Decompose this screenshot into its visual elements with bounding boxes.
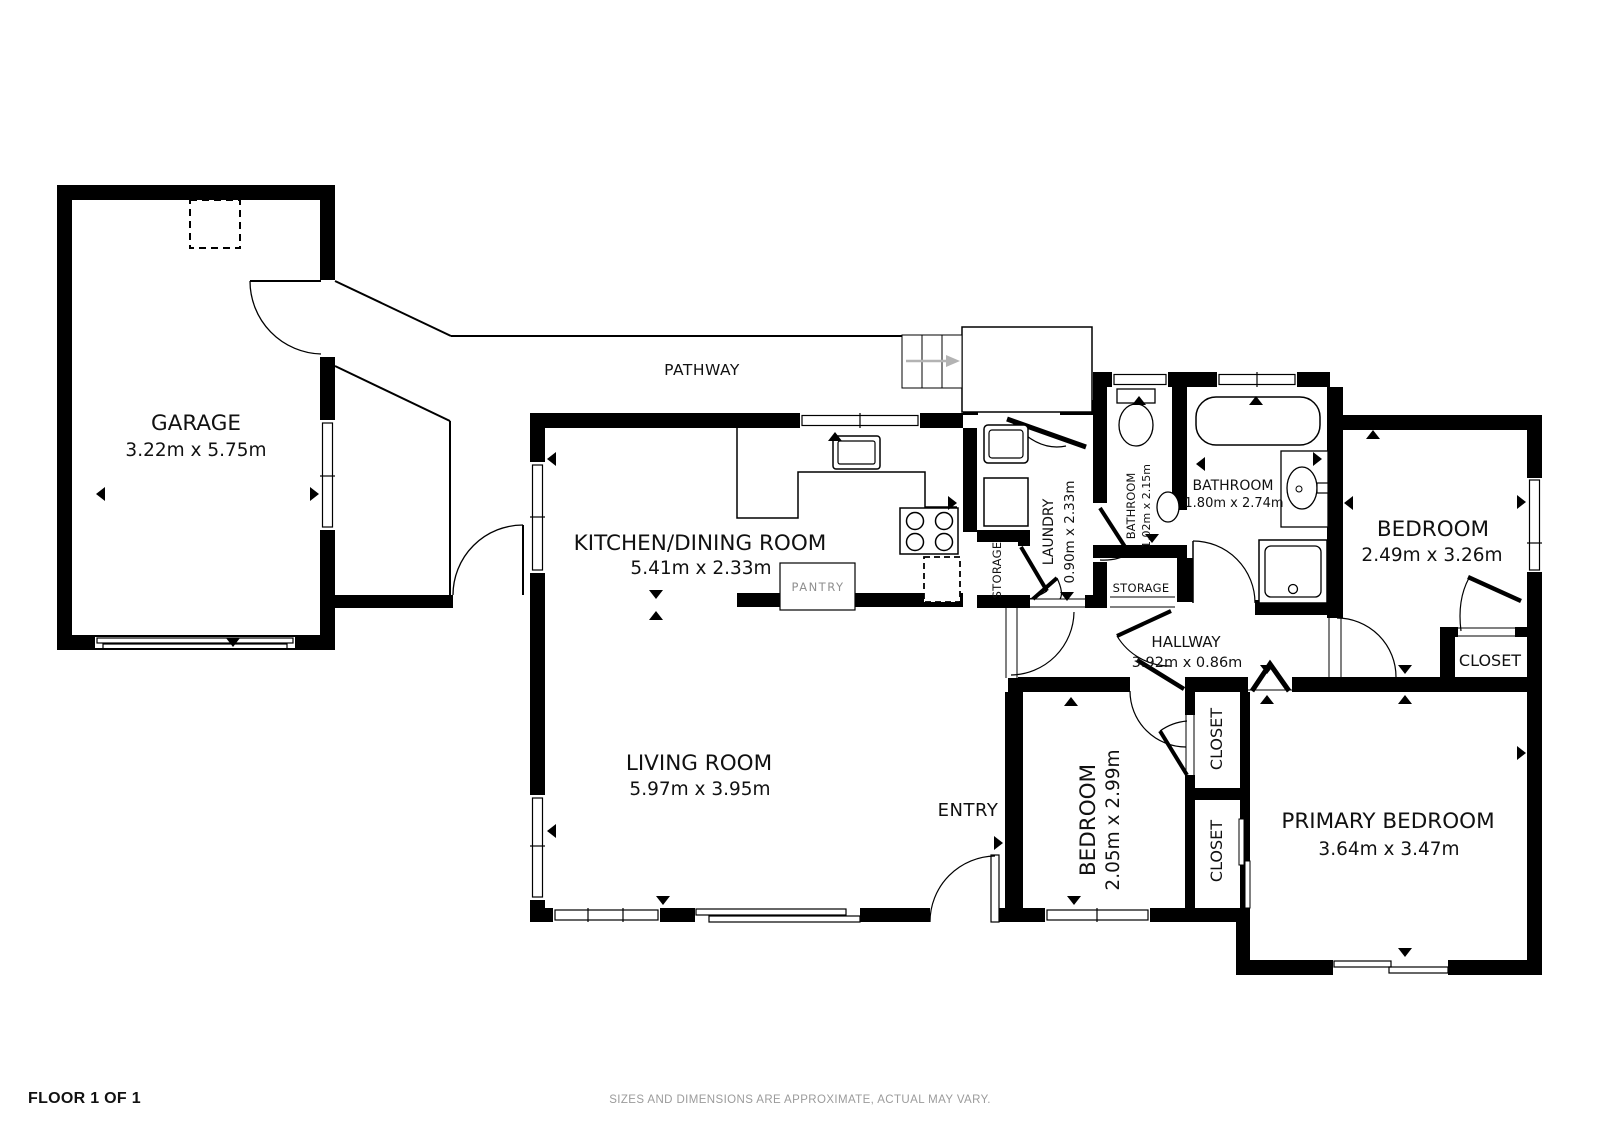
floor-label: FLOOR 1 OF 1 bbox=[28, 1090, 141, 1107]
laundry-south-threshold bbox=[1030, 598, 1085, 608]
closet-upper-label: CLOSET bbox=[1207, 708, 1226, 770]
dryer bbox=[984, 478, 1028, 526]
bedroom-middle-dims: 2.05m x 2.99m bbox=[1103, 749, 1124, 890]
sliding-window bbox=[1333, 960, 1448, 975]
front-entry-door bbox=[930, 855, 999, 922]
garage-dims: 3.22m x 5.75m bbox=[125, 440, 266, 461]
kitchen-dims: 5.41m x 2.33m bbox=[630, 558, 771, 579]
marker-left-icon bbox=[96, 487, 105, 501]
footer: FLOOR 1 OF 1 SIZES AND DIMENSIONS ARE AP… bbox=[28, 1090, 991, 1107]
pantry-label: PANTRY bbox=[792, 580, 845, 594]
shower bbox=[1259, 540, 1327, 603]
hallway-label: HALLWAY bbox=[1151, 633, 1221, 651]
closet-right-door bbox=[1460, 577, 1521, 631]
window bbox=[320, 420, 335, 530]
garage-label: GARAGE bbox=[151, 411, 241, 436]
pathway-gate bbox=[453, 525, 523, 595]
bedroom-middle-label: BEDROOM bbox=[1076, 764, 1101, 876]
window bbox=[530, 795, 545, 900]
marker-left-icon bbox=[547, 452, 556, 466]
marker-up-icon bbox=[1064, 697, 1078, 706]
living-dims: 5.97m x 3.95m bbox=[629, 779, 770, 800]
storage-kitchen-label: STORAGE bbox=[990, 542, 1004, 599]
marker-down-icon bbox=[1067, 896, 1081, 905]
bathroom-small-dims: 1.02m x 2.15m bbox=[1140, 464, 1153, 548]
floor-plan-page: GARAGE 3.22m x 5.75m PATHWAY KITCHEN/DIN… bbox=[0, 0, 1600, 1131]
vanity-sink bbox=[1281, 451, 1328, 527]
garage-door bbox=[95, 637, 295, 649]
entry-label: ENTRY bbox=[938, 800, 999, 821]
main-bath-door bbox=[1193, 541, 1255, 603]
marker-up-icon bbox=[1398, 695, 1412, 704]
disclaimer-text: SIZES AND DIMENSIONS ARE APPROXIMATE, AC… bbox=[609, 1094, 991, 1106]
bedroom-right-door bbox=[1337, 618, 1396, 677]
primary-bedroom-label: PRIMARY BEDROOM bbox=[1281, 809, 1494, 834]
window bbox=[1217, 372, 1297, 387]
garage-utility-dashed-box bbox=[190, 200, 240, 248]
closet-right-threshold bbox=[1458, 627, 1515, 637]
marker-left-icon bbox=[1344, 496, 1353, 510]
kitchen-label: KITCHEN/DINING ROOM bbox=[574, 531, 827, 556]
bedroom-middle-door bbox=[1130, 660, 1186, 747]
primary-bedroom-dims: 3.64m x 3.47m bbox=[1318, 839, 1459, 860]
marker-right-icon bbox=[1517, 495, 1526, 509]
pathway-label: PATHWAY bbox=[664, 361, 740, 379]
marker-left-icon bbox=[547, 824, 556, 838]
toilet bbox=[1117, 389, 1155, 446]
marker-down-icon bbox=[1398, 948, 1412, 957]
laundry-hall-door bbox=[1033, 578, 1061, 599]
window bbox=[1527, 478, 1542, 572]
window bbox=[1045, 908, 1150, 922]
living-label: LIVING ROOM bbox=[626, 751, 772, 776]
floor-plan-canvas: GARAGE 3.22m x 5.75m PATHWAY KITCHEN/DIN… bbox=[0, 0, 1600, 1131]
marker-up-icon bbox=[1366, 430, 1380, 439]
window bbox=[1112, 372, 1168, 387]
marker-down-icon bbox=[656, 896, 670, 905]
sliding-door bbox=[695, 908, 860, 922]
storage-hall-label: STORAGE bbox=[1113, 581, 1170, 595]
hallway-dims: 3.92m x 0.86m bbox=[1132, 655, 1243, 671]
main-bath-threshold bbox=[1193, 600, 1255, 615]
small-bath-sink bbox=[1157, 492, 1179, 522]
closet-lower-label: CLOSET bbox=[1207, 820, 1226, 882]
porch-steps bbox=[902, 327, 1092, 412]
bedroom-right-threshold bbox=[1327, 618, 1343, 677]
bathroom-main-label: BATHROOM bbox=[1192, 478, 1273, 494]
dishwasher-dashed-box bbox=[924, 557, 960, 602]
stove bbox=[900, 508, 958, 554]
window bbox=[530, 462, 545, 573]
closet-upper-threshold bbox=[1185, 715, 1195, 775]
closet-upper-door bbox=[1160, 721, 1187, 775]
marker-down-icon bbox=[649, 590, 663, 599]
window bbox=[553, 908, 660, 922]
bedroom-right-dims: 2.49m x 3.26m bbox=[1361, 545, 1502, 566]
hall-storage-threshold bbox=[1107, 596, 1177, 608]
laundry-label: LAUNDRY bbox=[1041, 498, 1057, 565]
closet-right-label: CLOSET bbox=[1459, 651, 1521, 670]
hallway-west-door bbox=[1011, 612, 1074, 675]
marker-right-icon bbox=[1517, 746, 1526, 760]
window bbox=[800, 413, 920, 428]
bathroom-small-label: BATHROOM bbox=[1124, 473, 1138, 540]
marker-left-icon bbox=[1196, 457, 1205, 471]
washer bbox=[984, 425, 1028, 463]
bedroom-right-label: BEDROOM bbox=[1377, 517, 1489, 542]
marker-right-icon bbox=[994, 836, 1003, 850]
marker-down-icon bbox=[1398, 665, 1412, 674]
laundry-dims: 0.90m x 2.33m bbox=[1062, 481, 1078, 584]
marker-up-icon bbox=[1260, 695, 1274, 704]
marker-right-icon bbox=[310, 487, 319, 501]
hallway-west-threshold bbox=[1005, 608, 1018, 678]
bathroom-main-dims: 1.80m x 2.74m bbox=[1184, 496, 1283, 511]
marker-up-icon bbox=[649, 611, 663, 620]
garage-side-door bbox=[250, 281, 321, 354]
